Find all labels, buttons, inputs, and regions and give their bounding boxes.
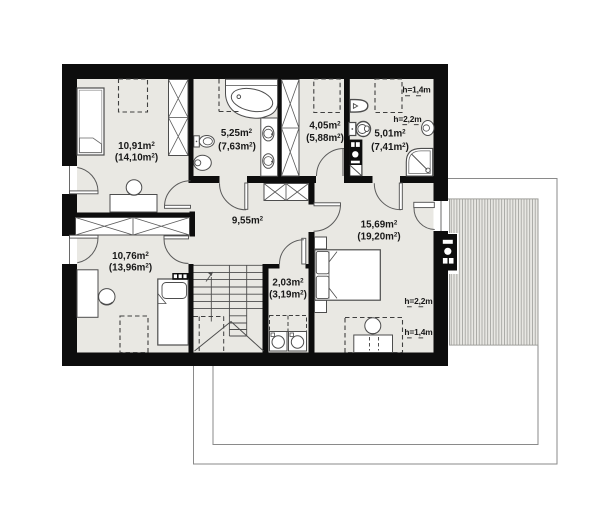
svg-text:10,91m2: 10,91m2	[118, 141, 155, 152]
svg-text:9,55m2: 9,55m2	[232, 215, 264, 226]
svg-text:4,05m2: 4,05m2	[309, 120, 341, 131]
svg-text:2,03m2: 2,03m2	[272, 277, 304, 288]
svg-text:5,25m2: 5,25m2	[221, 128, 253, 139]
svg-text:10,76m2: 10,76m2	[112, 251, 149, 262]
svg-text:h=2,2m: h=2,2m	[404, 296, 432, 306]
svg-text:h=2,2m: h=2,2m	[393, 114, 421, 124]
svg-text:h=1,4m: h=1,4m	[404, 327, 432, 337]
svg-text:15,69m2: 15,69m2	[361, 219, 398, 230]
svg-text:5,01m2: 5,01m2	[374, 128, 406, 139]
svg-text:h=1,4m: h=1,4m	[402, 85, 430, 95]
